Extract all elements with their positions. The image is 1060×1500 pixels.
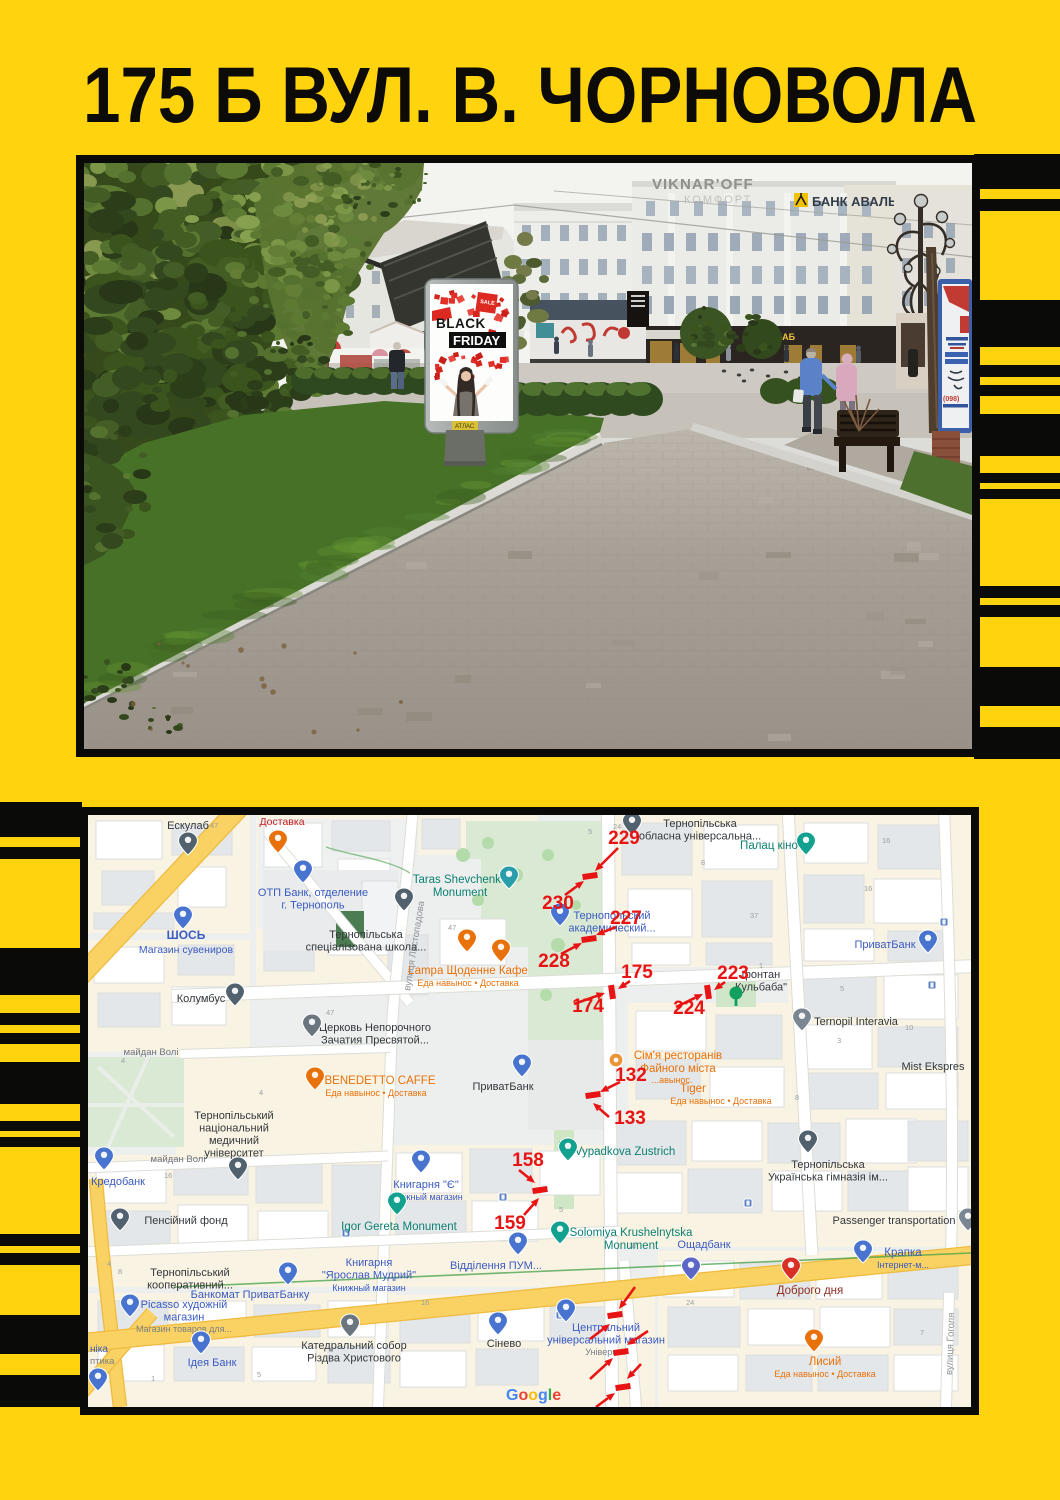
svg-text:223: 223 bbox=[717, 963, 749, 984]
svg-text:ПриватБанк: ПриватБанк bbox=[854, 939, 915, 951]
svg-text:230: 230 bbox=[542, 893, 574, 914]
svg-text:159: 159 bbox=[494, 1213, 526, 1234]
svg-text:5: 5 bbox=[840, 984, 844, 993]
svg-text:8: 8 bbox=[795, 1093, 799, 1102]
svg-text:8: 8 bbox=[701, 858, 705, 867]
svg-text:вулиця Гоголя: вулиця Гоголя bbox=[944, 1312, 957, 1375]
svg-text:Лисий: Лисий bbox=[809, 1356, 842, 1368]
svg-text:5: 5 bbox=[559, 1205, 563, 1214]
svg-text:Сім'я ресторанівФайного міста: Сім'я ресторанівФайного міста bbox=[634, 1050, 722, 1075]
svg-text:Катедральний соборРіздва Христ: Катедральний соборРіздва Христового bbox=[301, 1340, 407, 1365]
svg-text:Кредобанк: Кредобанк bbox=[91, 1176, 145, 1188]
svg-text:VIKNAR’OFF: VIKNAR’OFF bbox=[652, 176, 754, 193]
svg-text:Еда навынос • Доставка: Еда навынос • Доставка bbox=[417, 978, 518, 988]
svg-text:АТЛАС: АТЛАС bbox=[455, 424, 475, 430]
svg-text:Google: Google bbox=[506, 1387, 561, 1404]
svg-text:37: 37 bbox=[750, 911, 758, 920]
svg-text:BLACK: BLACK bbox=[436, 316, 486, 331]
svg-text:ніка: ніка bbox=[90, 1344, 108, 1355]
svg-text:ПриватБанк: ПриватБанк bbox=[472, 1081, 533, 1093]
svg-text:БАНК АВАЛЬ: БАНК АВАЛЬ bbox=[812, 194, 897, 209]
svg-text:майдан Волі: майдан Волі bbox=[151, 1154, 206, 1165]
svg-text:16: 16 bbox=[164, 1171, 172, 1180]
svg-text:FRIDAY: FRIDAY bbox=[453, 333, 501, 348]
svg-text:Доброго дня: Доброго дня bbox=[777, 1285, 844, 1297]
svg-text:Еда навынос • Доставка: Еда навынос • Доставка bbox=[325, 1088, 426, 1098]
svg-text:Тернопільськийкооперативний...: Тернопільськийкооперативний... bbox=[147, 1267, 233, 1292]
svg-text:Сінево: Сінево bbox=[487, 1338, 521, 1350]
svg-text:175: 175 bbox=[621, 962, 653, 983]
svg-text:228: 228 bbox=[538, 951, 570, 972]
svg-text:Книгарня "Є": Книгарня "Є" bbox=[393, 1179, 459, 1191]
svg-text:4: 4 bbox=[107, 1259, 111, 1268]
svg-text:8: 8 bbox=[118, 1267, 122, 1276]
svg-text:Крапка: Крапка bbox=[884, 1247, 922, 1259]
svg-text:3: 3 bbox=[837, 1036, 841, 1045]
svg-text:47: 47 bbox=[448, 923, 456, 932]
svg-text:24: 24 bbox=[686, 1298, 694, 1307]
svg-text:Ескулаб: Ескулаб bbox=[167, 820, 209, 832]
svg-text:BENEDETTO CAFFE: BENEDETTO CAFFE bbox=[325, 1075, 436, 1087]
svg-text:Магазин сувениров: Магазин сувениров bbox=[139, 944, 234, 956]
svg-text:47: 47 bbox=[210, 821, 218, 830]
svg-text:Доставка: Доставка bbox=[259, 816, 304, 828]
svg-text:Igor Gereta Monument: Igor Gereta Monument bbox=[341, 1221, 458, 1233]
svg-text:Ternopil Interavia: Ternopil Interavia bbox=[814, 1016, 899, 1028]
svg-text:10: 10 bbox=[905, 1023, 913, 1032]
svg-text:47: 47 bbox=[326, 1008, 334, 1017]
svg-text:Відділення ПУМ...: Відділення ПУМ... bbox=[450, 1260, 542, 1272]
svg-text:Mist Ekspres: Mist Ekspres bbox=[902, 1061, 965, 1073]
svg-text:158: 158 bbox=[512, 1150, 544, 1171]
svg-text:Книжный магазин: Книжный магазин bbox=[332, 1283, 406, 1293]
svg-text:1: 1 bbox=[151, 1374, 155, 1383]
svg-text:Ідея Банк: Ідея Банк bbox=[188, 1357, 237, 1369]
svg-text:229: 229 bbox=[608, 828, 640, 849]
svg-text:Passenger transportation: Passenger transportation bbox=[833, 1215, 956, 1227]
svg-text:Vypadkova Zustrich: Vypadkova Zustrich bbox=[575, 1146, 676, 1158]
svg-text:7: 7 bbox=[920, 1328, 924, 1337]
svg-text:Церковь НепорочногоЗачатия Пре: Церковь НепорочногоЗачатия Пресвятой... bbox=[319, 1022, 431, 1047]
svg-text:Колумбус: Колумбус bbox=[177, 993, 226, 1005]
svg-text:майдан Волі: майдан Волі bbox=[124, 1047, 179, 1058]
svg-text:5: 5 bbox=[588, 827, 592, 836]
svg-text:16: 16 bbox=[421, 1298, 429, 1307]
svg-text:Tiger: Tiger bbox=[680, 1083, 706, 1095]
svg-text:4: 4 bbox=[259, 1088, 263, 1097]
svg-text:Інтернет-м...: Інтернет-м... bbox=[877, 1260, 929, 1270]
svg-text:птика: птика bbox=[90, 1356, 115, 1367]
svg-text:16: 16 bbox=[882, 836, 890, 845]
svg-text:16: 16 bbox=[864, 884, 872, 893]
svg-text:Еда навынос • Доставка: Еда навынос • Доставка bbox=[774, 1369, 875, 1379]
svg-text:Палац кіно: Палац кіно bbox=[740, 840, 798, 852]
svg-text:ШОСЬ: ШОСЬ bbox=[167, 928, 206, 942]
svg-text:133: 133 bbox=[614, 1108, 646, 1129]
svg-text:Lampa Щоденне Кафе: Lampa Щоденне Кафе bbox=[408, 965, 528, 977]
svg-text:Еда навынос • Доставка: Еда навынос • Доставка bbox=[670, 1096, 771, 1106]
svg-text:Пенсійний фонд: Пенсійний фонд bbox=[144, 1215, 228, 1227]
svg-text:(098): (098) bbox=[943, 396, 959, 403]
svg-text:Ощадбанк: Ощадбанк bbox=[677, 1239, 730, 1251]
svg-text:Магазин товаров для...: Магазин товаров для... bbox=[136, 1324, 232, 1334]
svg-text:227: 227 bbox=[610, 908, 642, 929]
svg-text:5: 5 bbox=[257, 1370, 261, 1379]
